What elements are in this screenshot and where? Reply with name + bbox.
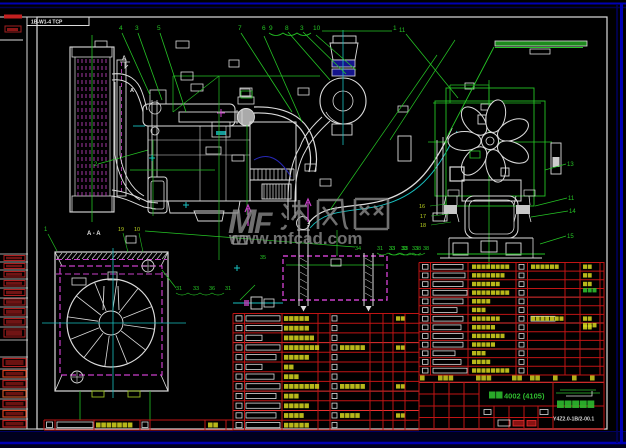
- svg-text:4: 4: [119, 25, 123, 32]
- svg-text:7: 7: [238, 25, 242, 32]
- svg-text:1: 1: [393, 25, 397, 32]
- svg-text:17: 17: [420, 214, 426, 220]
- svg-text:16: 16: [419, 204, 425, 210]
- svg-text:31: 31: [377, 246, 383, 252]
- svg-text:A: A: [130, 88, 134, 94]
- svg-text:33: 33: [389, 246, 395, 252]
- svg-text:31: 31: [176, 286, 182, 292]
- svg-text:6: 6: [262, 25, 266, 32]
- svg-text:5: 5: [157, 25, 161, 32]
- svg-text:18: 18: [420, 223, 426, 229]
- svg-text:9: 9: [269, 25, 273, 32]
- svg-text:A - A: A - A: [87, 231, 101, 237]
- svg-text:1B-W1-4 TCP: 1B-W1-4 TCP: [31, 20, 63, 26]
- svg-text:33: 33: [412, 246, 418, 252]
- svg-text:36: 36: [209, 286, 215, 292]
- svg-text:13: 13: [567, 162, 574, 168]
- svg-text:15: 15: [567, 234, 574, 240]
- svg-text:14: 14: [569, 209, 576, 215]
- svg-text:3: 3: [300, 25, 304, 32]
- svg-text:19: 19: [118, 227, 124, 233]
- svg-text:11: 11: [399, 28, 406, 34]
- svg-text:8: 8: [285, 25, 289, 32]
- svg-text:33: 33: [401, 246, 407, 252]
- svg-text:Y4Z2.0-1B/2-00.1: Y4Z2.0-1B/2-00.1: [553, 417, 594, 423]
- svg-text:31: 31: [225, 286, 231, 292]
- svg-text:35: 35: [260, 255, 266, 261]
- svg-text:A: A: [122, 56, 127, 62]
- svg-text:33: 33: [193, 286, 199, 292]
- svg-text:www.mfcad.com: www.mfcad.com: [228, 229, 363, 248]
- svg-text:3: 3: [135, 25, 139, 32]
- svg-text:4002 (4105): 4002 (4105): [504, 392, 545, 401]
- svg-text:10: 10: [134, 227, 140, 233]
- svg-text:10: 10: [313, 25, 321, 32]
- svg-text:11: 11: [568, 196, 575, 202]
- svg-text:38: 38: [423, 246, 429, 252]
